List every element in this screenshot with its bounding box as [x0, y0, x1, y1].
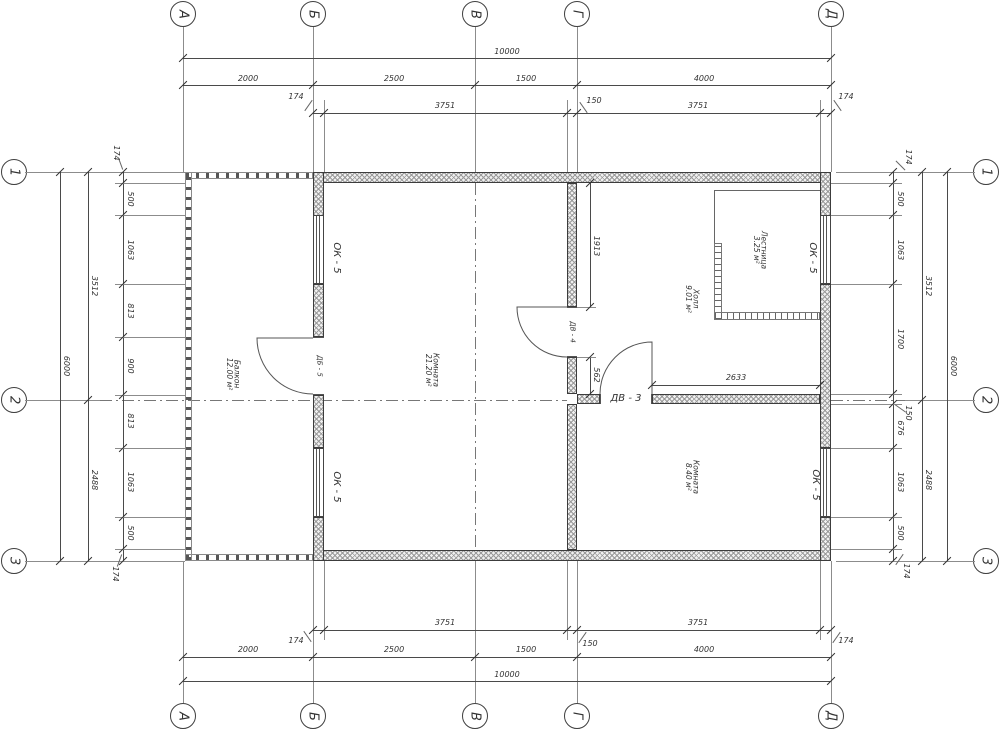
room-label-living: Комната 21.20 м²: [425, 353, 440, 387]
room-label-stairs: Лестница 3.25 м²: [753, 231, 768, 269]
door-label-balcony: ДБ - 5: [316, 355, 323, 377]
dim-label: 500: [126, 525, 134, 540]
door-label-room: ДВ - 4: [569, 321, 576, 343]
dim-label: 3751: [688, 619, 708, 627]
dim-overall-bottom: 10000: [494, 671, 519, 679]
dim-label: 4000: [694, 75, 714, 83]
dim-label-interior: 2633: [726, 374, 746, 382]
dim-label: 1063: [896, 472, 904, 492]
dim-label: 174: [838, 93, 853, 101]
dim-label: 3512: [90, 276, 98, 296]
dim-label: 2488: [90, 470, 98, 490]
dim-label: 500: [896, 525, 904, 540]
dim-label: 500: [896, 191, 904, 206]
dim-label: 900: [126, 358, 134, 373]
dim-label: 3751: [435, 102, 455, 110]
room-area: 21.20 м²: [425, 353, 433, 387]
dim-label: 174: [902, 563, 910, 578]
dim-label: 1063: [896, 240, 904, 260]
dim-label: 1700: [896, 329, 904, 349]
door-swing-hall: [600, 342, 652, 394]
dim-label: 813: [126, 303, 134, 318]
dim-label: 174: [838, 637, 853, 645]
dim-label: 676: [896, 420, 904, 435]
room-name: Балкон: [233, 358, 241, 391]
door-swing-room: [517, 307, 567, 357]
window-label-left-top: ОК - 5: [331, 242, 341, 273]
dim-label: 174: [288, 93, 303, 101]
window-label-right-bottom: ОК - 5: [810, 469, 820, 500]
dim-label: 2500: [384, 75, 404, 83]
room-label-balcony: Балкон 12.00 м²: [226, 358, 241, 391]
dim-label: 3512: [924, 276, 932, 296]
dim-label: 3751: [435, 619, 455, 627]
dim-label: 2000: [238, 646, 258, 654]
window-label-right-top: ОК - 5: [807, 242, 817, 273]
room-label-bedroom: Комната 8.40 м²: [685, 460, 700, 494]
dim-label: 1500: [516, 646, 536, 654]
room-area: 9.01 м²: [685, 285, 693, 313]
dim-label: 1063: [126, 240, 134, 260]
dim-label: 3751: [688, 102, 708, 110]
room-area: 12.00 м²: [226, 358, 234, 391]
dim-label: 150: [582, 640, 597, 648]
dim-label: 2500: [384, 646, 404, 654]
room-area: 3.25 м²: [753, 231, 761, 269]
dim-label: 813: [126, 413, 134, 428]
window-label-left-bottom: ОК - 5: [331, 471, 341, 502]
dim-label: 174: [111, 566, 119, 581]
dim-label: 1063: [126, 472, 134, 492]
dim-label: 1500: [516, 75, 536, 83]
dim-label: 2488: [924, 470, 932, 490]
dim-label-interior: 562: [592, 367, 600, 382]
room-area: 8.40 м²: [685, 460, 693, 494]
dim-label: 500: [126, 191, 134, 206]
room-name: Лестница: [760, 231, 768, 269]
dim-label: 2000: [238, 75, 258, 83]
dim-label: 174: [288, 637, 303, 645]
floor-plan-sheet: А Б В Г Д А Б В Г Д 1 2 3 1 2 3: [0, 0, 1000, 730]
room-name: Комната: [432, 353, 440, 387]
dim-label-interior: 1913: [592, 236, 600, 256]
room-name: Холл: [692, 285, 700, 313]
door-swing-balcony: [257, 338, 313, 394]
dim-overall-left: 6000: [62, 356, 70, 376]
door-swings: [0, 0, 1000, 730]
dim-label: 150: [586, 97, 601, 105]
room-label-hall: Холл 9.01 м²: [685, 285, 700, 313]
dim-overall-top: 10000: [494, 48, 519, 56]
dim-overall-right: 6000: [949, 356, 957, 376]
room-name: Комната: [692, 460, 700, 494]
dim-label: 4000: [694, 646, 714, 654]
dim-label: 174: [904, 149, 912, 164]
door-label-hall: ДВ - 3: [610, 394, 641, 404]
